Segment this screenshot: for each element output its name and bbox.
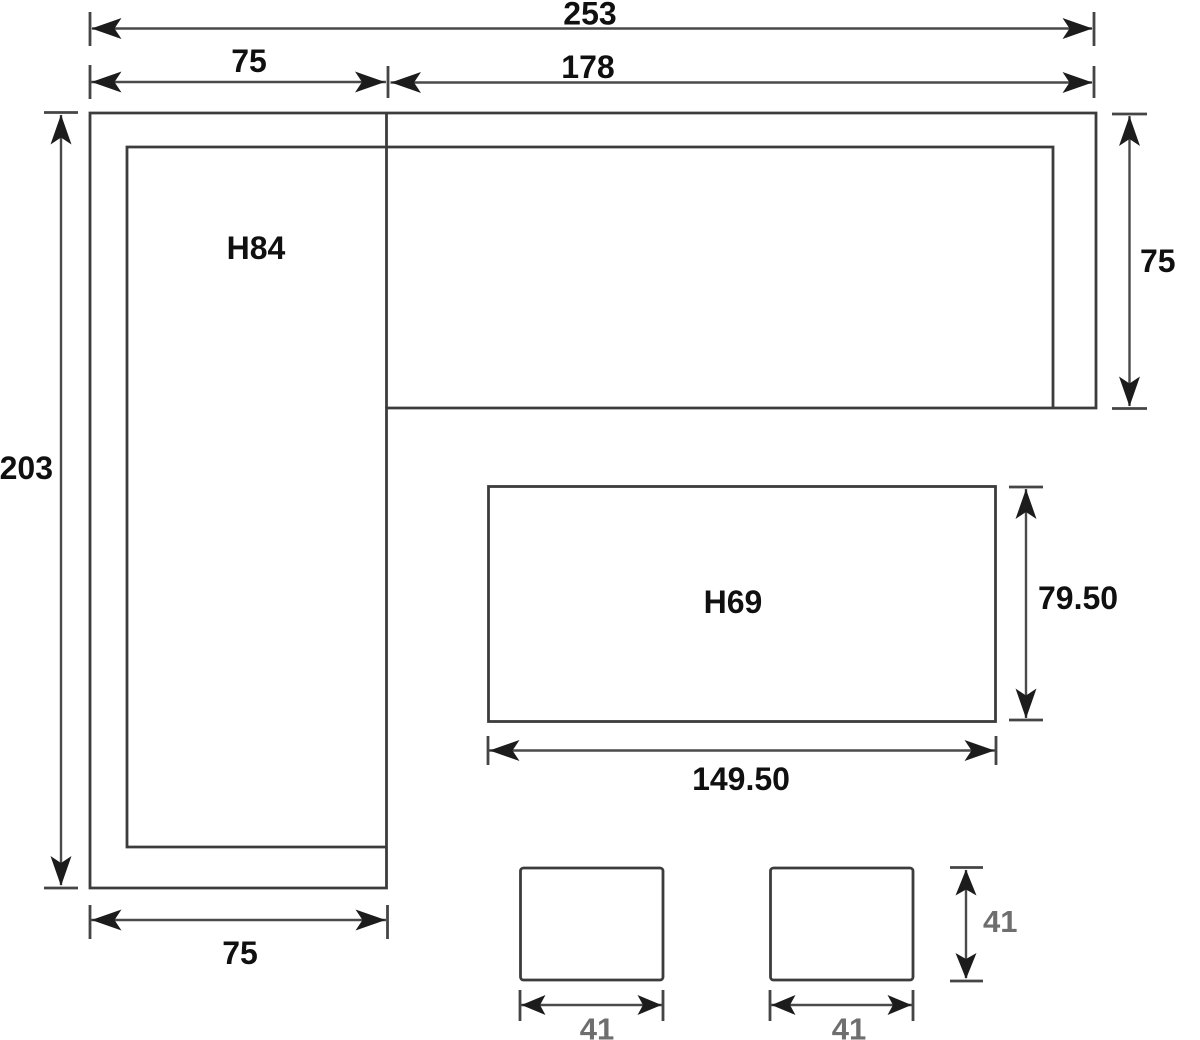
- svg-text:H84: H84: [227, 230, 286, 266]
- svg-text:203: 203: [0, 450, 53, 486]
- svg-text:41: 41: [983, 904, 1017, 939]
- svg-text:253: 253: [563, 0, 616, 32]
- svg-text:149.50: 149.50: [692, 761, 790, 797]
- svg-text:79.50: 79.50: [1038, 580, 1118, 616]
- svg-text:75: 75: [1140, 243, 1176, 279]
- svg-text:41: 41: [580, 1012, 614, 1040]
- svg-text:75: 75: [222, 935, 258, 971]
- svg-text:41: 41: [832, 1012, 866, 1040]
- svg-text:75: 75: [231, 43, 267, 79]
- svg-text:178: 178: [561, 49, 614, 85]
- svg-text:H69: H69: [704, 584, 763, 620]
